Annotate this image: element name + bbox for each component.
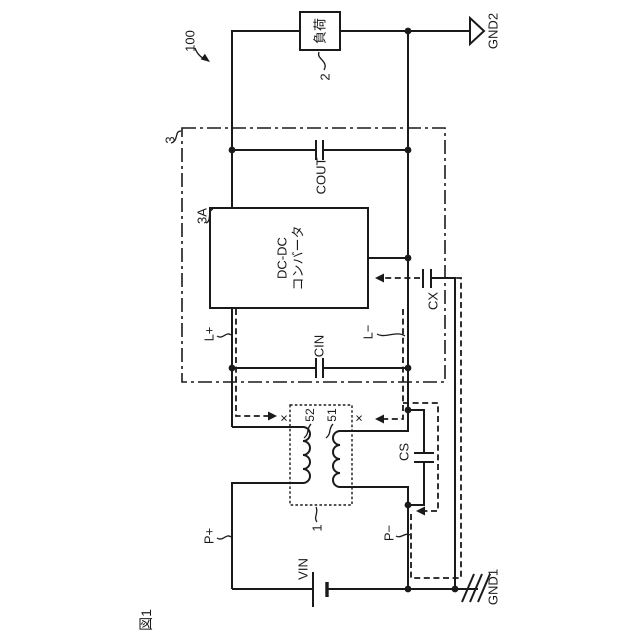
- ref-3a-label: 3A: [195, 208, 210, 224]
- arrowhead-left-icon: [416, 507, 425, 516]
- node: [405, 586, 412, 593]
- noise-path-left: [236, 309, 268, 416]
- leader-ref-1: [316, 507, 317, 522]
- arrowhead-left-icon: [375, 415, 384, 424]
- p-plus-label: P+: [202, 528, 217, 544]
- noise-path-arrowheads: [268, 274, 425, 516]
- arrowhead-right-icon: [268, 412, 277, 421]
- p-minus-label: P−: [382, 525, 397, 541]
- circuit-diagram: 図1 100 負荷 2 GND2 3 COUT 3A DC-DC コンバータ L…: [0, 0, 640, 640]
- gnd1-label: GND1: [486, 569, 501, 605]
- l-plus-label: L+: [202, 327, 217, 342]
- cross-mark-right: ×: [355, 411, 363, 426]
- patent-figure-page: 図1 100 負荷 2 GND2 3 COUT 3A DC-DC コンバータ L…: [0, 0, 640, 640]
- node: [229, 365, 236, 372]
- load-label: 負荷: [313, 18, 328, 44]
- ref-100-arrowhead-icon: [201, 54, 210, 62]
- ref-2-label: 2: [318, 73, 333, 80]
- node: [229, 147, 236, 154]
- node: [405, 502, 412, 509]
- node: [405, 255, 412, 262]
- leader-ref-2: [319, 52, 326, 70]
- ref-1-label: 1: [310, 524, 325, 531]
- cx-label: CX: [426, 292, 441, 310]
- leader-l-minus: [377, 334, 405, 336]
- ref-100-label: 100: [183, 30, 198, 52]
- leader-ref-51: [326, 424, 333, 438]
- cin-label: CIN: [312, 335, 327, 357]
- gnd2-terminal-icon: [470, 18, 484, 44]
- ref-51-label: 51: [325, 408, 339, 422]
- capacitor-cin-plates: [316, 358, 323, 378]
- node: [405, 407, 412, 414]
- solid-wires: [232, 31, 490, 607]
- capacitor-cs-plates: [414, 453, 434, 462]
- node: [405, 28, 412, 35]
- vin-label: VIN: [296, 558, 311, 580]
- arrowhead-left-icon: [375, 274, 384, 283]
- cross-mark-left: ×: [280, 411, 288, 426]
- gnd2-label: GND2: [486, 13, 501, 49]
- choke-enclosure-box: [290, 405, 352, 505]
- noise-path-right: [384, 309, 403, 419]
- cs-label: CS: [397, 443, 412, 461]
- labels: 図1 100 負荷 2 GND2 3 COUT 3A DC-DC コンバータ L…: [138, 13, 501, 631]
- leader-p-plus: [217, 536, 231, 539]
- l-minus-label: L−: [361, 325, 376, 340]
- wire-load-to-converter-left: [232, 31, 300, 208]
- figure-title: 図1: [138, 609, 154, 631]
- node: [452, 586, 459, 593]
- leader-l-plus: [217, 334, 231, 337]
- node: [405, 365, 412, 372]
- capacitor-cx-plates: [423, 269, 431, 288]
- dcdc-line1: DC-DC: [275, 237, 290, 279]
- wire-cx-to-gnd1: [431, 278, 455, 589]
- dcdc-line2: コンバータ: [291, 225, 306, 290]
- cout-label: COUT: [314, 158, 329, 195]
- ref-3-label: 3: [163, 136, 178, 143]
- ref-52-label: 52: [303, 408, 317, 422]
- capacitor-cout-plates: [316, 140, 323, 160]
- node: [405, 147, 412, 154]
